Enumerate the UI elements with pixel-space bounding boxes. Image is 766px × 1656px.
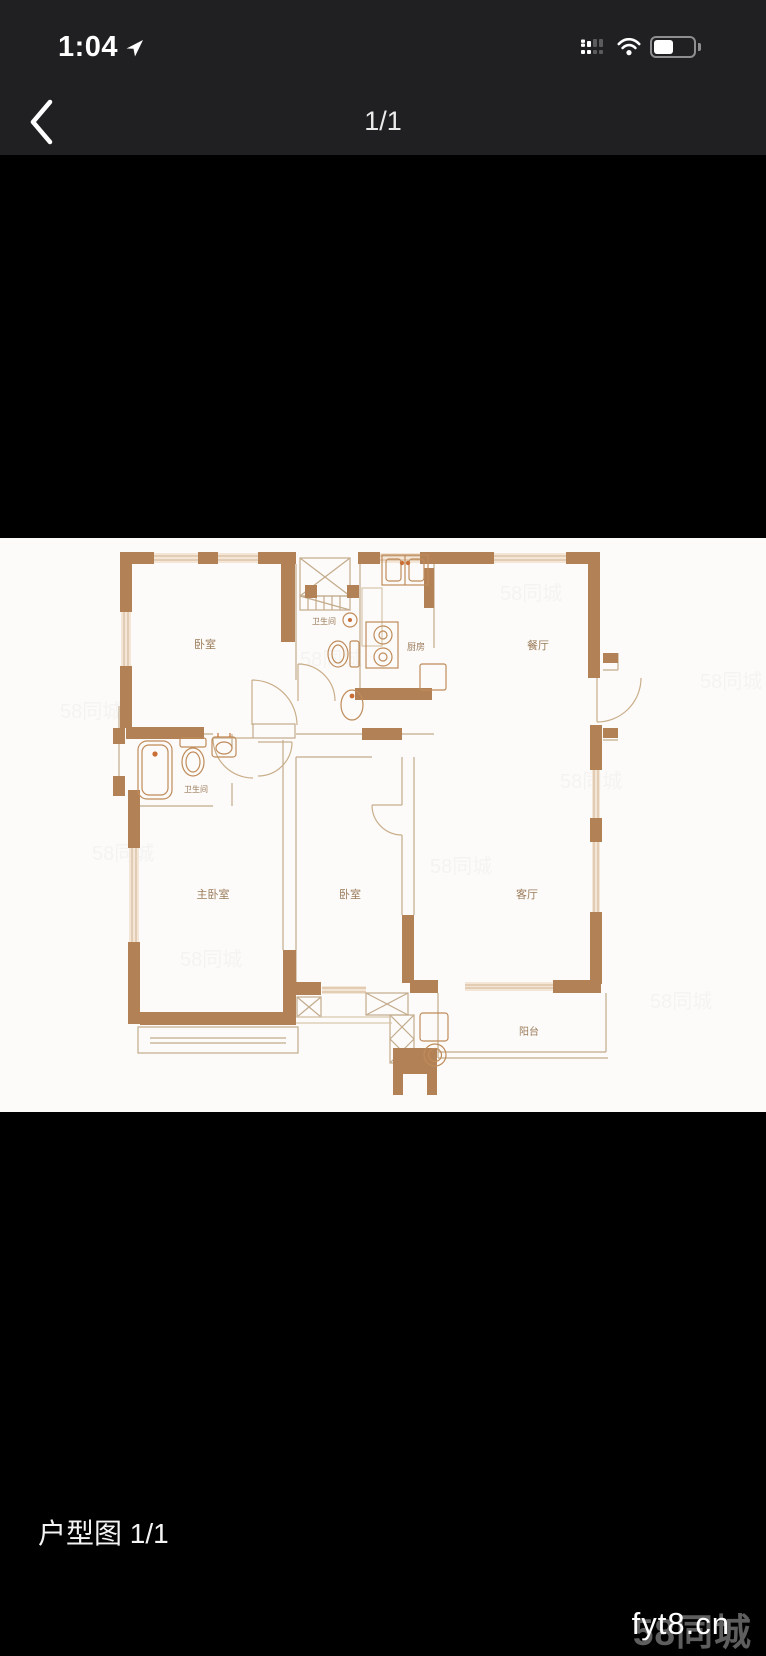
wifi-icon [617,38,641,56]
room-label-bedroom-top: 卧室 [194,637,216,651]
floor-plan-photo[interactable]: 58同城58同城58同城58同城58同城58同城58同城58同城58同城 [0,538,766,1112]
room-label-dining: 餐厅 [527,638,549,652]
faint-watermark: 58同城 [560,770,622,793]
washer-cabinet [420,1013,448,1041]
room-label-bedroom-mid: 卧室 [339,887,361,901]
room-labels: 卧室卫生间厨房餐厅卫生间主卧室卧室客厅阳台 [184,616,549,1038]
faint-watermark: 58同城 [650,990,712,1013]
faint-watermark: 58同城 [60,700,122,723]
fridge [420,664,446,690]
kitchen-counter [362,588,382,646]
battery-icon [650,36,696,58]
faint-watermark: 58同城 [92,842,154,865]
kitchen-sink [382,555,428,585]
page-indicator: 1/1 [0,88,766,155]
room-label-bath-top: 卫生间 [312,616,336,626]
site-watermark: fyt8.cn [632,1606,730,1642]
corner-sink [343,613,357,627]
pedestal-sink [341,690,363,720]
faint-watermark: 58同城 [700,670,762,693]
photo-caption: 户型图 1/1 [38,1512,169,1552]
watermark-group: 58同城 fyt8.cn [572,1602,752,1652]
room-label-master-bedroom: 主卧室 [197,887,230,901]
floor-plan-drawing: 58同城58同城58同城58同城58同城58同城58同城58同城58同城 [0,538,766,1112]
location-arrow-icon [124,36,146,58]
room-label-balcony: 阳台 [519,1025,539,1038]
screen: 1:04 [0,0,766,1656]
faint-watermark: 58同城 [500,582,562,605]
clock: 1:04 [58,31,118,64]
cellular-signal-icon [581,39,608,56]
bathtub [138,741,172,799]
nav-bar: 1/1 [0,88,766,155]
room-label-kitchen: 厨房 [407,641,425,652]
faint-watermark: 58同城 [180,948,242,971]
room-label-living: 客厅 [516,887,538,901]
faint-watermark: 58同城 [430,855,492,878]
status-bar: 1:04 [0,0,766,88]
toilet-left [180,738,206,776]
room-label-bath-left: 卫生间 [184,784,208,794]
top-chrome: 1:04 [0,0,766,155]
